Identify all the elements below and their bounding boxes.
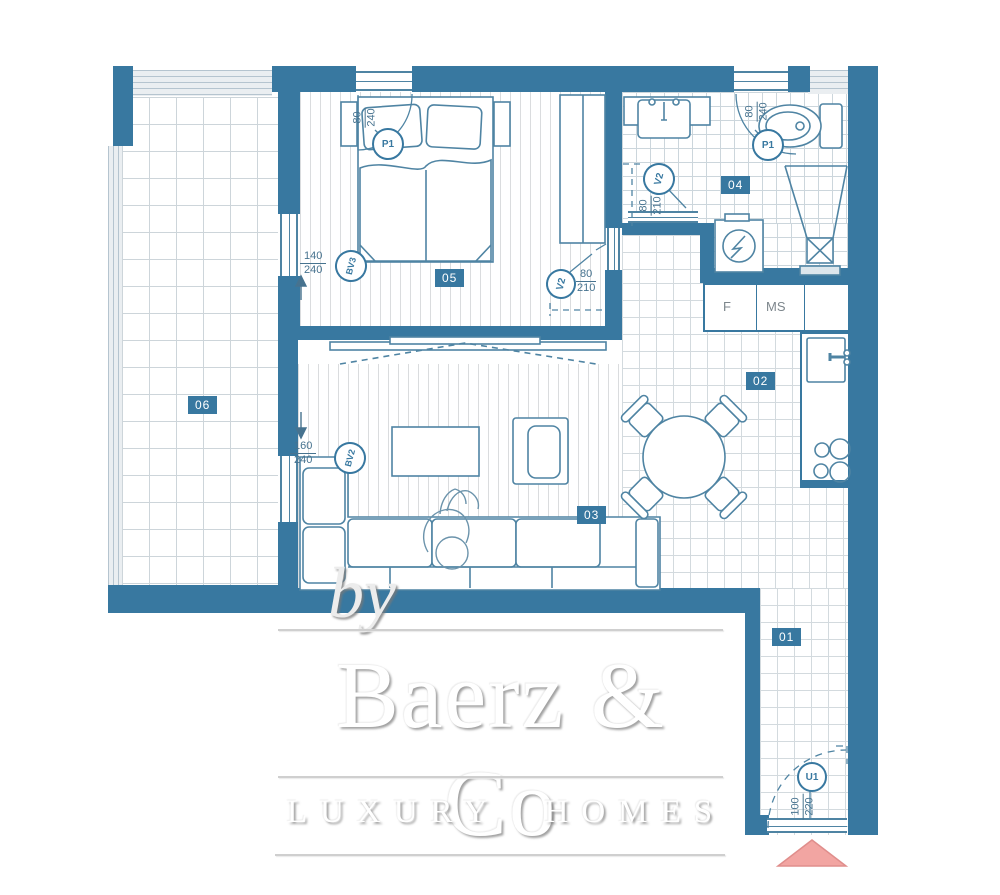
dim-bedroom-door: 80210 <box>573 268 599 295</box>
bathroom-sink <box>624 97 710 138</box>
bedroom-door-swing <box>550 303 604 316</box>
door-label-p1-wc: P1 <box>752 129 784 161</box>
door-label-u1: U1 <box>797 762 827 792</box>
bathroom-door-leader <box>667 188 686 208</box>
dim-entrance-door: 100220 <box>790 793 817 819</box>
room-label-living: 03 <box>577 506 606 524</box>
door-label-p1-bedroom: P1 <box>372 128 404 160</box>
room-label-bathroom: 04 <box>721 176 750 194</box>
coffee-table <box>392 427 479 476</box>
armchair <box>513 418 568 484</box>
kitchen-sink <box>807 338 850 382</box>
stove <box>814 439 850 482</box>
wardrobe <box>560 95 605 243</box>
entrance-door-frame-dash <box>836 746 848 764</box>
room-label-terrace: 06 <box>188 396 217 414</box>
dim-bedroom-balcony-door: 80240 <box>352 104 379 130</box>
room-label-kitchen: 02 <box>746 372 775 390</box>
dining-set <box>620 394 748 520</box>
dim-bathroom-sliding-door: 80210 <box>638 192 665 218</box>
watermark-line-middle <box>278 776 723 778</box>
dim-bedroom-terrace-door: 140240 <box>300 250 326 277</box>
watermark-line-top <box>278 629 723 631</box>
dim-living-terrace-door: 160240 <box>290 440 316 467</box>
pantry-label: MS <box>766 299 786 314</box>
nightstand-right <box>494 102 510 146</box>
dim-wc-door: 80240 <box>744 98 771 124</box>
washing-machine <box>715 214 763 272</box>
floor-plan: F MS <box>0 0 1000 895</box>
tv-cabinet <box>330 337 606 364</box>
shower <box>785 166 847 275</box>
watermark-by: by <box>328 552 396 635</box>
watermark-tagline: LUXURY HOMES <box>276 794 736 831</box>
entry-arrows <box>296 276 306 438</box>
entrance-marker-triangle <box>778 840 846 866</box>
room-label-bedroom: 05 <box>435 269 464 287</box>
fridge-label: F <box>723 299 731 314</box>
room-label-hall: 01 <box>772 628 801 646</box>
watermark-line-bottom <box>275 854 725 856</box>
